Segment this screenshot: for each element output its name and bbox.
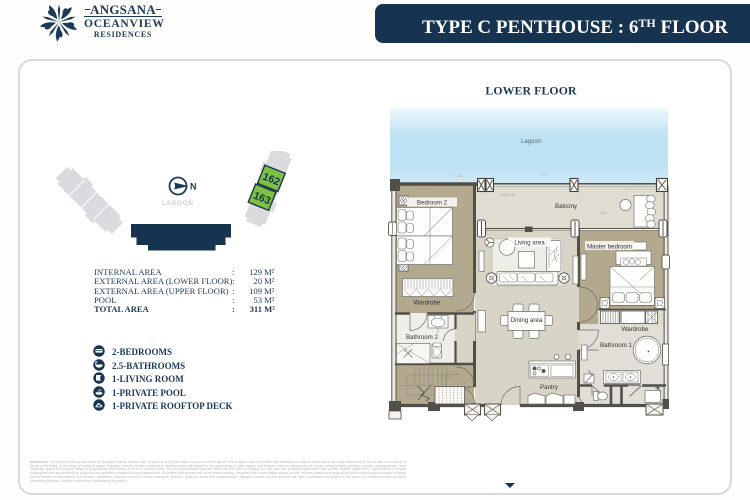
svg-text:Wardrobe: Wardrobe — [622, 326, 649, 333]
svg-text:Dining area: Dining area — [511, 317, 543, 324]
svg-text:Bathroom 2: Bathroom 2 — [406, 334, 439, 341]
svg-text:Wardrobe: Wardrobe — [414, 300, 441, 307]
svg-text:Balcony: Balcony — [555, 203, 578, 210]
svg-text:15.05: 15.05 — [540, 173, 548, 177]
svg-text:LOWER FLOOR: LOWER FLOOR — [485, 84, 577, 98]
svg-text:1.805: 1.805 — [455, 174, 463, 178]
svg-text:Pantry: Pantry — [540, 384, 559, 391]
svg-text:Bedroom 2: Bedroom 2 — [417, 200, 448, 207]
svg-text:Bathroom 1: Bathroom 1 — [600, 342, 633, 349]
svg-text:Living area: Living area — [514, 240, 545, 247]
svg-text:2.805 1.34: 2.805 1.34 — [500, 193, 515, 197]
svg-text:3.34: 3.34 — [600, 211, 606, 215]
svg-text:Lagoon: Lagoon — [521, 139, 541, 145]
svg-text:1.805: 1.805 — [420, 187, 428, 191]
svg-text:Master bedroom: Master bedroom — [587, 244, 632, 251]
svg-text:2.805: 2.805 — [585, 233, 593, 237]
